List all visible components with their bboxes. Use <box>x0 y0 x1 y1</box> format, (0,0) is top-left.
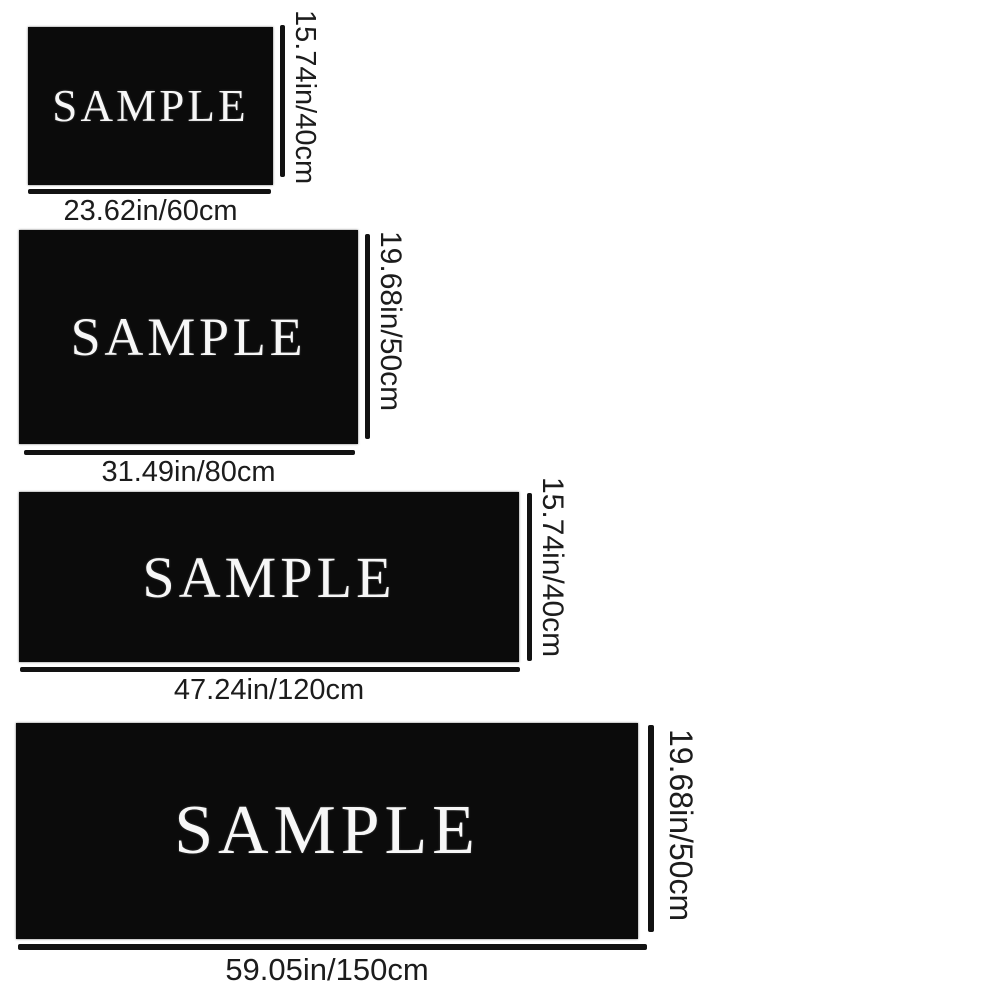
height-dimension-label: 15.74in/40cm <box>535 477 569 657</box>
height-measure-line <box>365 234 370 439</box>
size-swatch: SAMPLE <box>19 230 358 444</box>
width-measure-line <box>24 450 355 455</box>
size-swatch: SAMPLE <box>19 492 519 662</box>
height-measure-line <box>648 725 654 932</box>
height-dimension-label: 19.68in/50cm <box>373 231 407 411</box>
sample-watermark: SAMPLE <box>71 306 307 368</box>
width-measure-line <box>28 189 271 194</box>
sample-watermark: SAMPLE <box>142 544 395 611</box>
height-measure-line <box>280 25 285 177</box>
size-swatch: SAMPLE <box>28 27 273 185</box>
sample-watermark: SAMPLE <box>52 80 248 132</box>
width-dimension-label: 59.05in/150cm <box>16 952 638 988</box>
width-measure-line <box>18 944 647 950</box>
sample-watermark: SAMPLE <box>174 791 480 871</box>
height-dimension-label: 15.74in/40cm <box>288 10 321 184</box>
width-dimension-label: 47.24in/120cm <box>19 674 519 707</box>
size-chart-canvas: SAMPLE 23.62in/60cm 15.74in/40cm SAMPLE … <box>0 0 1000 1000</box>
width-dimension-label: 31.49in/80cm <box>19 456 358 489</box>
size-swatch: SAMPLE <box>16 723 638 939</box>
height-measure-line <box>527 493 532 661</box>
width-measure-line <box>20 667 520 672</box>
height-dimension-label: 19.68in/50cm <box>662 729 699 921</box>
width-dimension-label: 23.62in/60cm <box>28 195 273 228</box>
